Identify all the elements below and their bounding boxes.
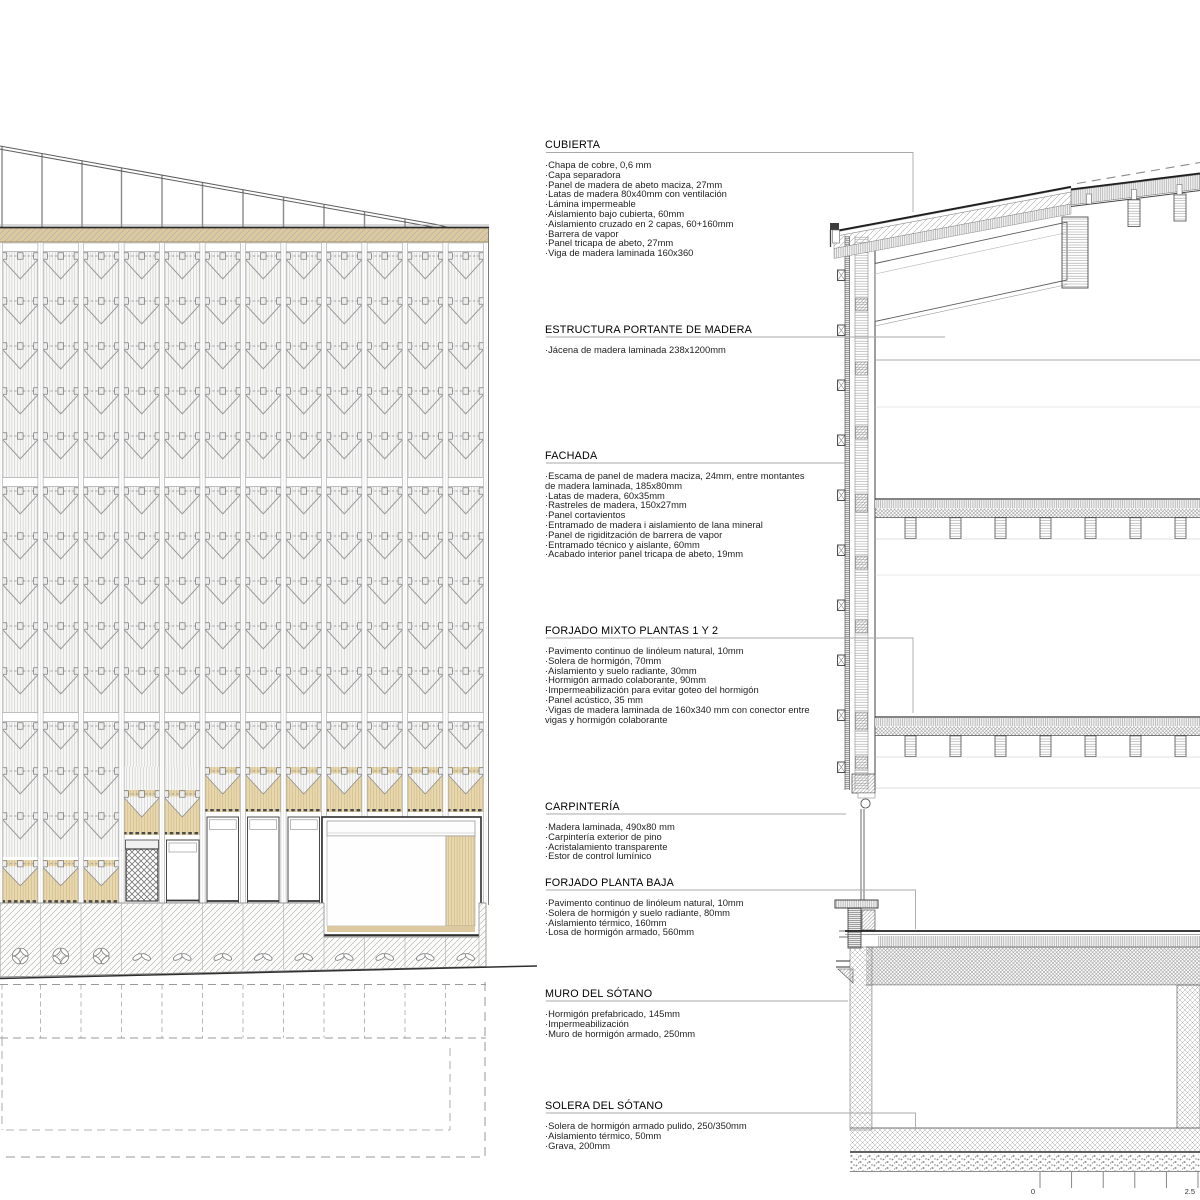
basement-room [872, 985, 1177, 1128]
spec-item: ·Muro de hormigón armado, 250mm [545, 1029, 913, 1039]
spec-block-estructura: ESTRUCTURA PORTANTE DE MADERA ·Jácena de… [545, 324, 913, 355]
scale-end-label: 2.5 [1185, 1187, 1195, 1196]
spec-item: ·Grava, 200mm [545, 1141, 913, 1151]
spec-item: ·Estor de control lumínico [545, 851, 913, 861]
spec-items: ·Chapa de cobre, 0,6 mm·Capa separadora·… [545, 160, 913, 258]
mesh-door [126, 840, 159, 901]
spec-items: ·Pavimento continuo de linóleum natural,… [545, 646, 913, 724]
spec-items: ·Hormigón prefabricado, 145mm·Impermeabi… [545, 1009, 913, 1038]
spec-block-solera: SOLERA DEL SÓTANO ·Solera de hormigón ar… [545, 1100, 913, 1150]
spec-title: FACHADA [545, 450, 913, 462]
facade-grid [0, 228, 489, 936]
spec-item: vigas y hormigón colaborante [545, 715, 913, 725]
spec-item: ·Viga de madera laminada 160x360 [545, 248, 913, 258]
spec-items: ·Madera laminada, 490x80 mm·Carpintería … [545, 822, 913, 861]
glazed-door-1 [207, 817, 239, 903]
spec-block-forjado-mixto: FORJADO MIXTO PLANTAS 1 Y 2 ·Pavimento c… [545, 625, 913, 724]
large-window [320, 817, 483, 936]
section-ground-slab [845, 931, 1200, 985]
spec-items: ·Jácena de madera laminada 238x1200mm [545, 345, 913, 355]
spec-block-fachada: FACHADA ·Escama de panel de madera maciz… [545, 450, 913, 559]
glazed-door-2 [248, 817, 280, 903]
scale-bar: 0 2.5 [1031, 1172, 1198, 1196]
spec-title: FORJADO PLANTA BAJA [545, 877, 913, 889]
spec-items: ·Pavimento continuo de linóleum natural,… [545, 898, 913, 937]
spec-item: ·Acabado interior panel tricapa de abeto… [545, 549, 913, 559]
spec-title: MURO DEL SÓTANO [545, 988, 913, 1000]
spec-item: ·Jácena de madera laminada 238x1200mm [545, 345, 913, 355]
entrance-door [167, 840, 200, 903]
scale-start-label: 0 [1031, 1187, 1035, 1196]
section-floor-slab-2 [875, 717, 1200, 788]
spec-block-carpinteria: CARPINTERÍA ·Madera laminada, 490x80 mm·… [545, 801, 913, 861]
spec-title: SOLERA DEL SÓTANO [545, 1100, 913, 1112]
spec-items: ·Solera de hormigón armado pulido, 250/3… [545, 1121, 913, 1150]
spec-items: ·Escama de panel de madera maciza, 24mm,… [545, 471, 913, 559]
section-floor-slab-1 [875, 499, 1200, 575]
glazed-door-3 [288, 817, 320, 903]
basement-outline-dashed [0, 982, 486, 1157]
basement-wall-right [1177, 985, 1200, 1128]
ridge-support-beam [1062, 217, 1088, 288]
facade-elevation [0, 146, 537, 1157]
spec-block-cubierta: CUBIERTA ·Chapa de cobre, 0,6 mm·Capa se… [545, 139, 913, 258]
gravel-layer [850, 1154, 1200, 1171]
spec-title: ESTRUCTURA PORTANTE DE MADERA [545, 324, 913, 336]
window-lintel [852, 774, 875, 793]
spec-title: CUBIERTA [545, 139, 913, 151]
spec-block-forjado-pb: FORJADO PLANTA BAJA ·Pavimento continuo … [545, 877, 913, 937]
spec-title: FORJADO MIXTO PLANTAS 1 Y 2 [545, 625, 913, 637]
spec-block-muro: MURO DEL SÓTANO ·Hormigón prefabricado, … [545, 988, 913, 1038]
spec-title: CARPINTERÍA [545, 801, 913, 813]
spec-item: ·Losa de hormigón armado, 560mm [545, 927, 913, 937]
